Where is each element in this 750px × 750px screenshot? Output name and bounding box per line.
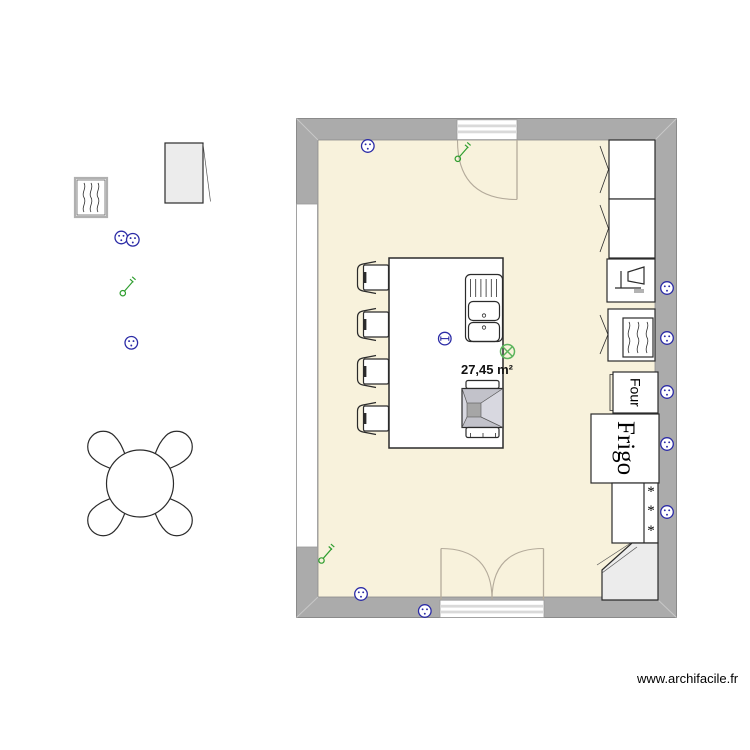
power-outlet-icon[interactable] [127,234,140,247]
light-switch-icon[interactable] [120,277,136,296]
watermark: www.archifacile.fr [637,671,738,686]
power-outlet-icon[interactable] [661,506,674,519]
floor-plan-canvas: 27,45 m² Four Frigo * * * www.archifacil… [0,0,750,750]
door-leaf-unplaced[interactable] [165,143,211,203]
power-outlet-icon[interactable] [362,140,375,153]
fridge-label[interactable]: Frigo [591,414,659,483]
oven-label[interactable]: Four [613,372,658,413]
freezer-star: * [647,523,655,540]
power-outlet-icon[interactable] [419,605,432,618]
power-outlet-special-icon[interactable] [439,332,452,345]
freezer-star: * [647,503,655,520]
power-outlet-icon[interactable] [661,386,674,399]
power-outlet-icon[interactable] [115,231,128,244]
room-area-label: 27,45 m² [450,362,524,377]
freezer-star: * [647,484,655,501]
power-outlet-icon[interactable] [661,438,674,451]
freezer-stars: * * * [643,483,659,541]
dishwasher[interactable] [607,259,655,302]
radiator[interactable] [75,178,107,217]
round-table-with-chairs[interactable] [81,425,198,542]
power-outlet-icon[interactable] [661,332,674,345]
window-left[interactable] [297,204,318,547]
cooker-hood[interactable] [462,381,503,438]
power-outlet-icon[interactable] [125,337,138,350]
power-outlet-icon[interactable] [661,282,674,295]
power-outlet-icon[interactable] [355,588,368,601]
heater-cabinet[interactable] [600,309,655,361]
